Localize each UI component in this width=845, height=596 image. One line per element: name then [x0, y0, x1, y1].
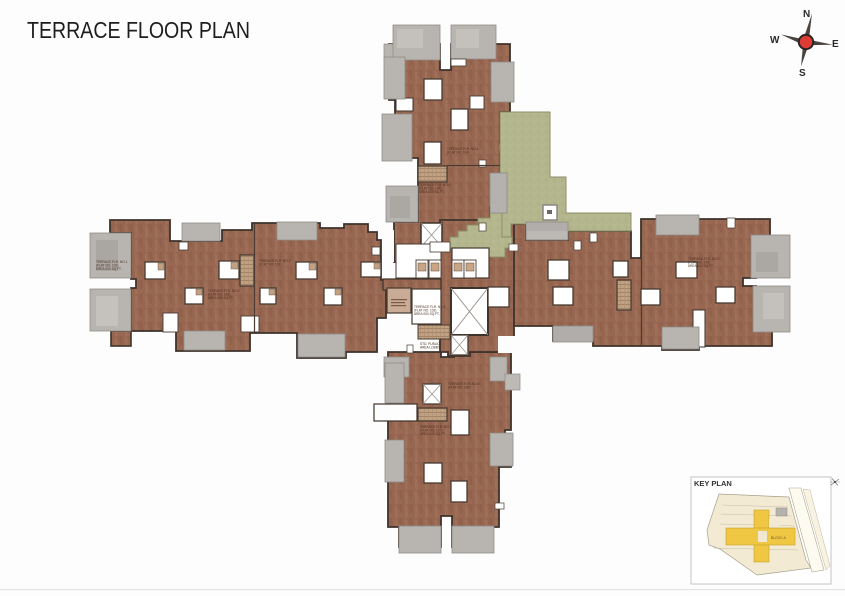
svg-text:BLOCK-A: BLOCK-A [771, 536, 787, 540]
svg-text:S: S [799, 68, 806, 79]
svg-text:KEY PLAN: KEY PLAN [694, 479, 732, 488]
svg-text:W: W [770, 35, 780, 46]
svg-text:E: E [832, 39, 839, 50]
svg-text:STD. PUBLICAREA LOBBY: STD. PUBLICAREA LOBBY [420, 342, 441, 350]
svg-text:N: N [803, 9, 810, 20]
svg-text:TERRACE FLOOR PLAN: TERRACE FLOOR PLAN [27, 17, 250, 43]
